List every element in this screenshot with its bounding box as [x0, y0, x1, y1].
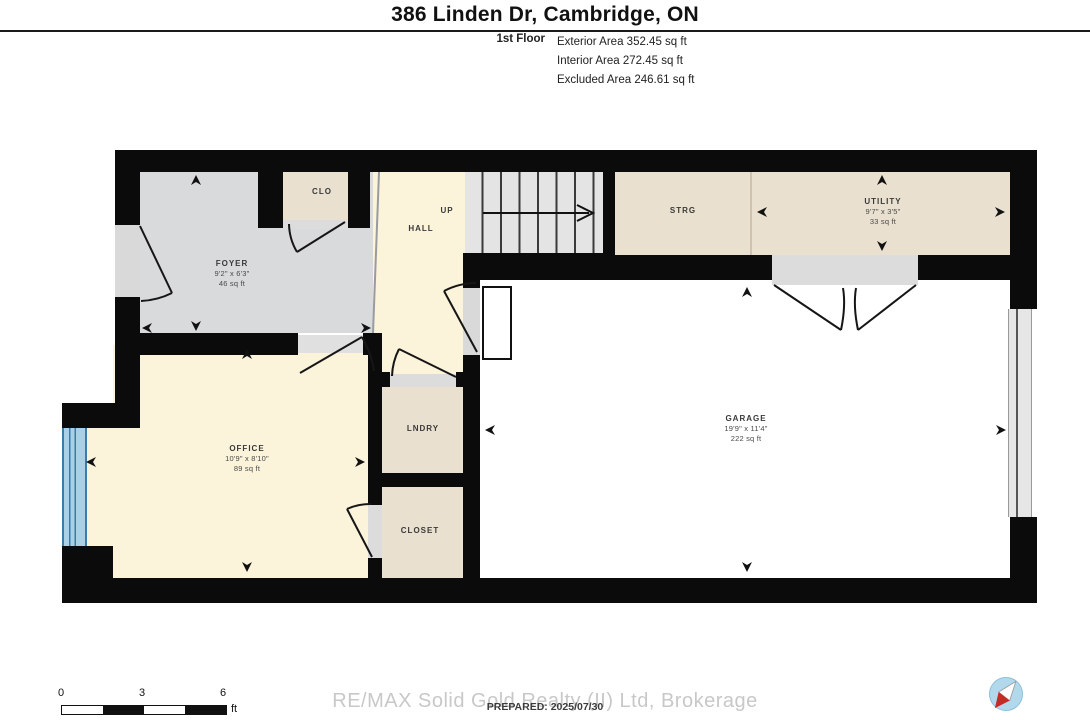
staircase: [465, 172, 603, 253]
foyer-dims: 9'2" x 6'3": [215, 269, 250, 279]
garage-area: 222 sq ft: [724, 434, 767, 444]
double-door-threshold: [772, 255, 918, 285]
wall-strip-bottom-right: [918, 255, 1010, 280]
room-label-clo: CLO: [312, 187, 332, 197]
wall-mandoor-stub: [463, 280, 480, 288]
foyer-area: 46 sq ft: [215, 279, 250, 289]
garage-entry-step: [482, 286, 512, 360]
room-label-utility: UTILITY 9'7" x 3'5" 33 sq ft: [864, 197, 901, 227]
exterior-area: Exterior Area 352.45 sq ft: [557, 33, 694, 52]
scale-tick-6: 6: [220, 687, 226, 699]
closet-door-threshold: [368, 505, 382, 558]
excluded-area: Excluded Area 246.61 sq ft: [557, 71, 694, 90]
scale-seg-2: [103, 706, 144, 714]
hall-name: HALL: [408, 224, 433, 234]
office-dims: 10'9" x 8'10": [225, 454, 269, 464]
garage-overhead-door: [1008, 309, 1032, 517]
scale-unit: ft: [231, 703, 237, 715]
wall-right-lower: [1010, 517, 1037, 603]
office-door-threshold: [298, 335, 363, 353]
wall-below-window: [62, 546, 113, 603]
strg-utility-boundary: [750, 172, 752, 255]
wall-top: [115, 150, 1037, 172]
clo-name: CLO: [312, 187, 332, 197]
utility-name: UTILITY: [864, 197, 901, 207]
room-hall: [373, 172, 465, 378]
wall-left-upper: [115, 150, 140, 225]
wall-lndry-top-right: [456, 372, 465, 387]
floor-plan-page: 386 Linden Dr, Cambridge, ON 1st Floor E…: [0, 0, 1090, 720]
garage-name: GARAGE: [724, 414, 767, 424]
wall-lndry-closet: [368, 473, 480, 487]
office-area: 89 sq ft: [225, 464, 269, 474]
wall-office-step: [62, 403, 140, 428]
scale-seg-1: [62, 706, 103, 714]
room-label-lndry: LNDRY: [407, 424, 439, 434]
wall-foyer-office-left: [115, 333, 298, 355]
wall-clo-right: [348, 150, 370, 228]
garage-mandoor-threshold: [463, 288, 480, 355]
page-title: 386 Linden Dr, Cambridge, ON: [0, 3, 1090, 27]
garage-overhead-door-line: [1016, 309, 1018, 517]
room-label-office: OFFICE 10'9" x 8'10" 89 sq ft: [225, 444, 269, 474]
wall-strip-bottom-left: [615, 255, 772, 280]
floor-label: 1st Floor: [420, 33, 545, 45]
room-label-closet: CLOSET: [401, 526, 439, 536]
wall-stairs-right: [603, 172, 615, 253]
office-name: OFFICE: [225, 444, 269, 454]
header-divider: [0, 30, 1090, 32]
wall-bottom: [107, 578, 1037, 603]
office-window: [62, 428, 87, 546]
room-label-hall: HALL: [408, 224, 433, 234]
closet-name: CLOSET: [401, 526, 439, 536]
utility-dims: 9'7" x 3'5": [864, 207, 901, 217]
interior-area: Interior Area 272.45 sq ft: [557, 52, 694, 71]
stairs-direction-label: UP: [440, 206, 453, 216]
scale-seg-3: [144, 706, 185, 714]
garage-dims: 19'9" x 11'4": [724, 424, 767, 434]
lndry-door-threshold: [388, 374, 458, 387]
entry-door-threshold: [115, 225, 140, 297]
foyer-name: FOYER: [215, 259, 250, 269]
area-summary: Exterior Area 352.45 sq ft Interior Area…: [557, 33, 694, 90]
wall-under-stairs: [463, 253, 615, 280]
lndry-name: LNDRY: [407, 424, 439, 434]
wall-hall-garage: [463, 355, 480, 578]
wall-lndry-top-left: [368, 372, 390, 387]
utility-area: 33 sq ft: [864, 217, 901, 227]
scale-tick-3: 3: [139, 687, 145, 699]
wall-office-east-lower: [368, 558, 382, 578]
clo-door-threshold: [283, 220, 348, 229]
room-label-strg: STRG: [670, 206, 696, 216]
wall-clo-left: [258, 150, 283, 228]
room-label-foyer: FOYER 9'2" x 6'3" 46 sq ft: [215, 259, 250, 289]
scale-seg-4: [185, 706, 226, 714]
up-label: UP: [440, 206, 453, 216]
scale-bar: [61, 705, 227, 715]
wall-right-upper: [1010, 150, 1037, 309]
scale-tick-0: 0: [58, 687, 64, 699]
room-label-garage: GARAGE 19'9" x 11'4" 222 sq ft: [724, 414, 767, 444]
strg-name: STRG: [670, 206, 696, 216]
